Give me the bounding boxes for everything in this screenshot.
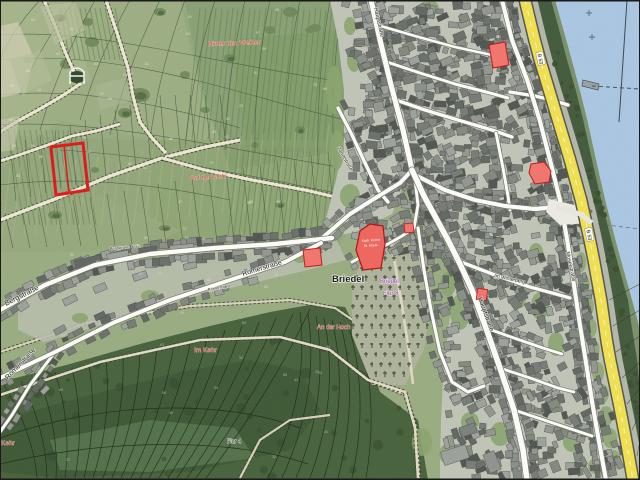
svg-text:An der Hoch: An der Hoch [317, 325, 350, 331]
svg-text:Flur 8: Flur 8 [383, 291, 399, 297]
svg-text:Im Kehr: Im Kehr [0, 440, 16, 447]
svg-text:Flur 4: Flur 4 [227, 439, 241, 445]
svg-text:Im Kehr: Im Kehr [194, 347, 218, 354]
svg-text:Briedel: Briedel [332, 274, 364, 285]
svg-text:Briedel: Briedel [380, 279, 399, 285]
